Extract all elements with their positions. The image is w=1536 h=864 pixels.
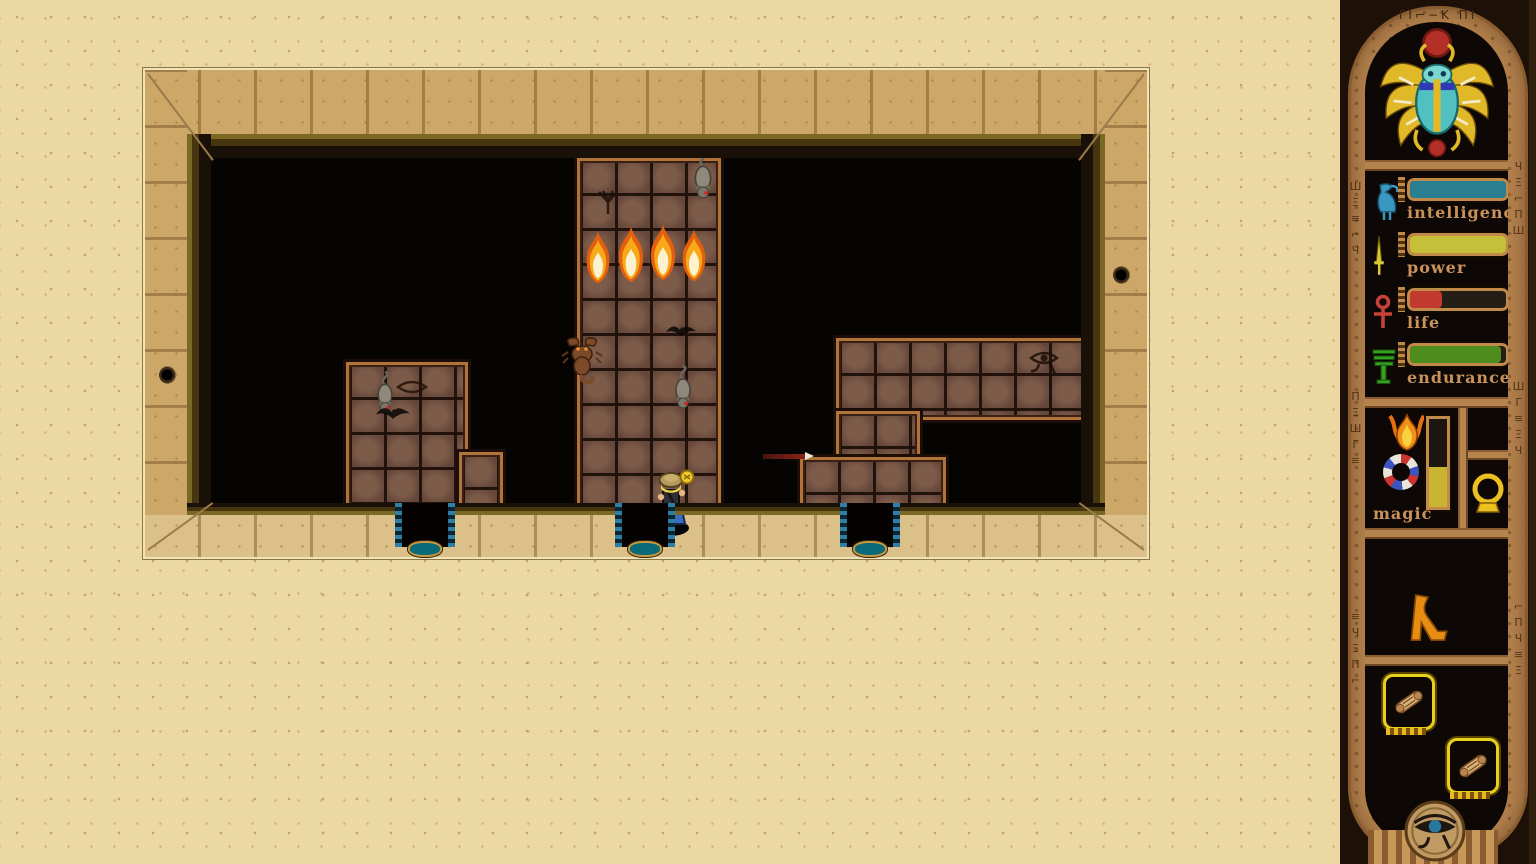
inner-border [187,134,1105,158]
room-wall-top [145,70,1147,134]
panel-divider [1458,408,1468,528]
scarab-icon [1369,23,1505,159]
panel-divider [1365,655,1508,666]
stat-row-endurance: endurance [1371,339,1508,394]
fire-flame [583,224,613,290]
stat-row-power: power [1371,229,1508,284]
life-bar [1407,288,1508,311]
eye-of-horus-medallion [1404,800,1466,862]
mirror-amulet-icon [1468,471,1508,517]
eye-glyph-mark [396,380,428,394]
door-jamb [448,503,455,547]
mirror-slot[interactable] [1468,460,1508,528]
door-jamb [840,503,847,547]
eye-of-horus-mark [1029,348,1059,376]
dungeon-room-viewport[interactable] [145,70,1147,557]
room-interior [211,158,1081,503]
sword-icon [1371,236,1387,278]
frame-glyphs-left: ΠΞШΓ≡ [1349,390,1362,470]
panel-divider [1365,528,1508,539]
scroll-icon [1391,684,1427,720]
panel-divider [1468,450,1508,460]
panel-divider [1365,397,1508,408]
scorpion-enemy [560,336,604,384]
frame-glyphs-right: ШΓ≡ΞЧ [1512,380,1525,460]
door-jamb [395,503,402,547]
legs-item-panel[interactable] [1365,539,1508,655]
power-label: power [1407,256,1508,280]
intelligence-label: intelligence [1407,201,1508,225]
door-eye-emblem [628,541,662,557]
slot-pedestal [1386,728,1426,735]
ibis-bird-icon [1371,182,1401,222]
magic-gauge-area: magic [1365,408,1458,528]
hud-sidebar: ΓI⌐−K ΠI ШΞ≡⌐Ч ΠΞШΓ≡ ≡ЧΞΠ⌐ ЧΞ⌐ΠШ ШΓ≡ΞЧ ⌐… [1340,0,1536,864]
scroll-slot-1[interactable] [1383,674,1435,730]
stat-row-intelligence: intelligence [1371,174,1508,229]
rat-enemy [670,364,696,410]
magic-gauge [1426,416,1450,510]
slot-pedestal [1450,792,1490,799]
bat-silhouette [376,403,410,419]
striped-ring-icon[interactable] [1383,454,1419,490]
door-eye-emblem [408,541,442,557]
frame-glyphs-left: ≡ЧΞΠ⌐ [1349,610,1362,690]
fire-flame [679,220,709,290]
stats-panel: intelligence power [1365,171,1508,397]
phoenix-flame-icon [1385,412,1429,452]
inner-border [187,134,211,515]
fire-flame [615,218,647,290]
door-jamb [615,503,622,547]
wall-dart-hole [1113,266,1131,284]
frame-glyphs-left: ШΞ≡⌐Ч [1349,180,1362,260]
wall-dart-hole [159,366,177,384]
bat-silhouette [666,322,696,336]
stat-row-life: life [1371,284,1508,339]
magic-label: magic [1373,502,1432,526]
game-screen: ΓI⌐−K ΠI ШΞ≡⌐Ч ΠΞШΓ≡ ≡ЧΞΠ⌐ ЧΞ⌐ΠШ ШΓ≡ΞЧ ⌐… [0,0,1536,864]
endurance-bar [1407,343,1508,366]
room-wall-right [1105,70,1147,517]
door-eye-emblem [853,541,887,557]
frame-glyphs-right: ЧΞ⌐ΠШ [1512,160,1525,240]
scarab-emblem-panel [1365,22,1508,160]
walking-legs-icon [1407,591,1451,643]
room-wall-left [145,70,187,517]
brick-platform-left-step [459,452,503,509]
scroll-slot-2[interactable] [1447,738,1499,794]
claw-glyph-mark [596,190,620,216]
life-label: life [1407,311,1508,335]
panel-divider [1365,160,1508,171]
inner-border [1081,134,1105,515]
door-jamb [668,503,675,547]
ankh-icon [1371,292,1395,332]
endurance-label: endurance [1407,366,1508,390]
scroll-icon [1455,748,1491,784]
door-jamb [893,503,900,547]
frame-glyphs-top: ΓI⌐−K ΠI [1340,8,1536,22]
equipment-column [1468,408,1508,528]
magic-panel: magic [1365,408,1508,528]
reed-plant-icon [1371,346,1397,388]
intelligence-bar [1407,178,1508,201]
hud-content: intelligence power [1365,22,1508,846]
brick-base-right [800,457,946,509]
frame-glyphs-right: ⌐ΠЧ≡Ξ [1512,600,1525,680]
fire-flame [647,214,679,290]
empty-equipment-slot[interactable] [1468,408,1508,450]
dart-projectile [763,454,805,459]
power-bar [1407,233,1508,256]
